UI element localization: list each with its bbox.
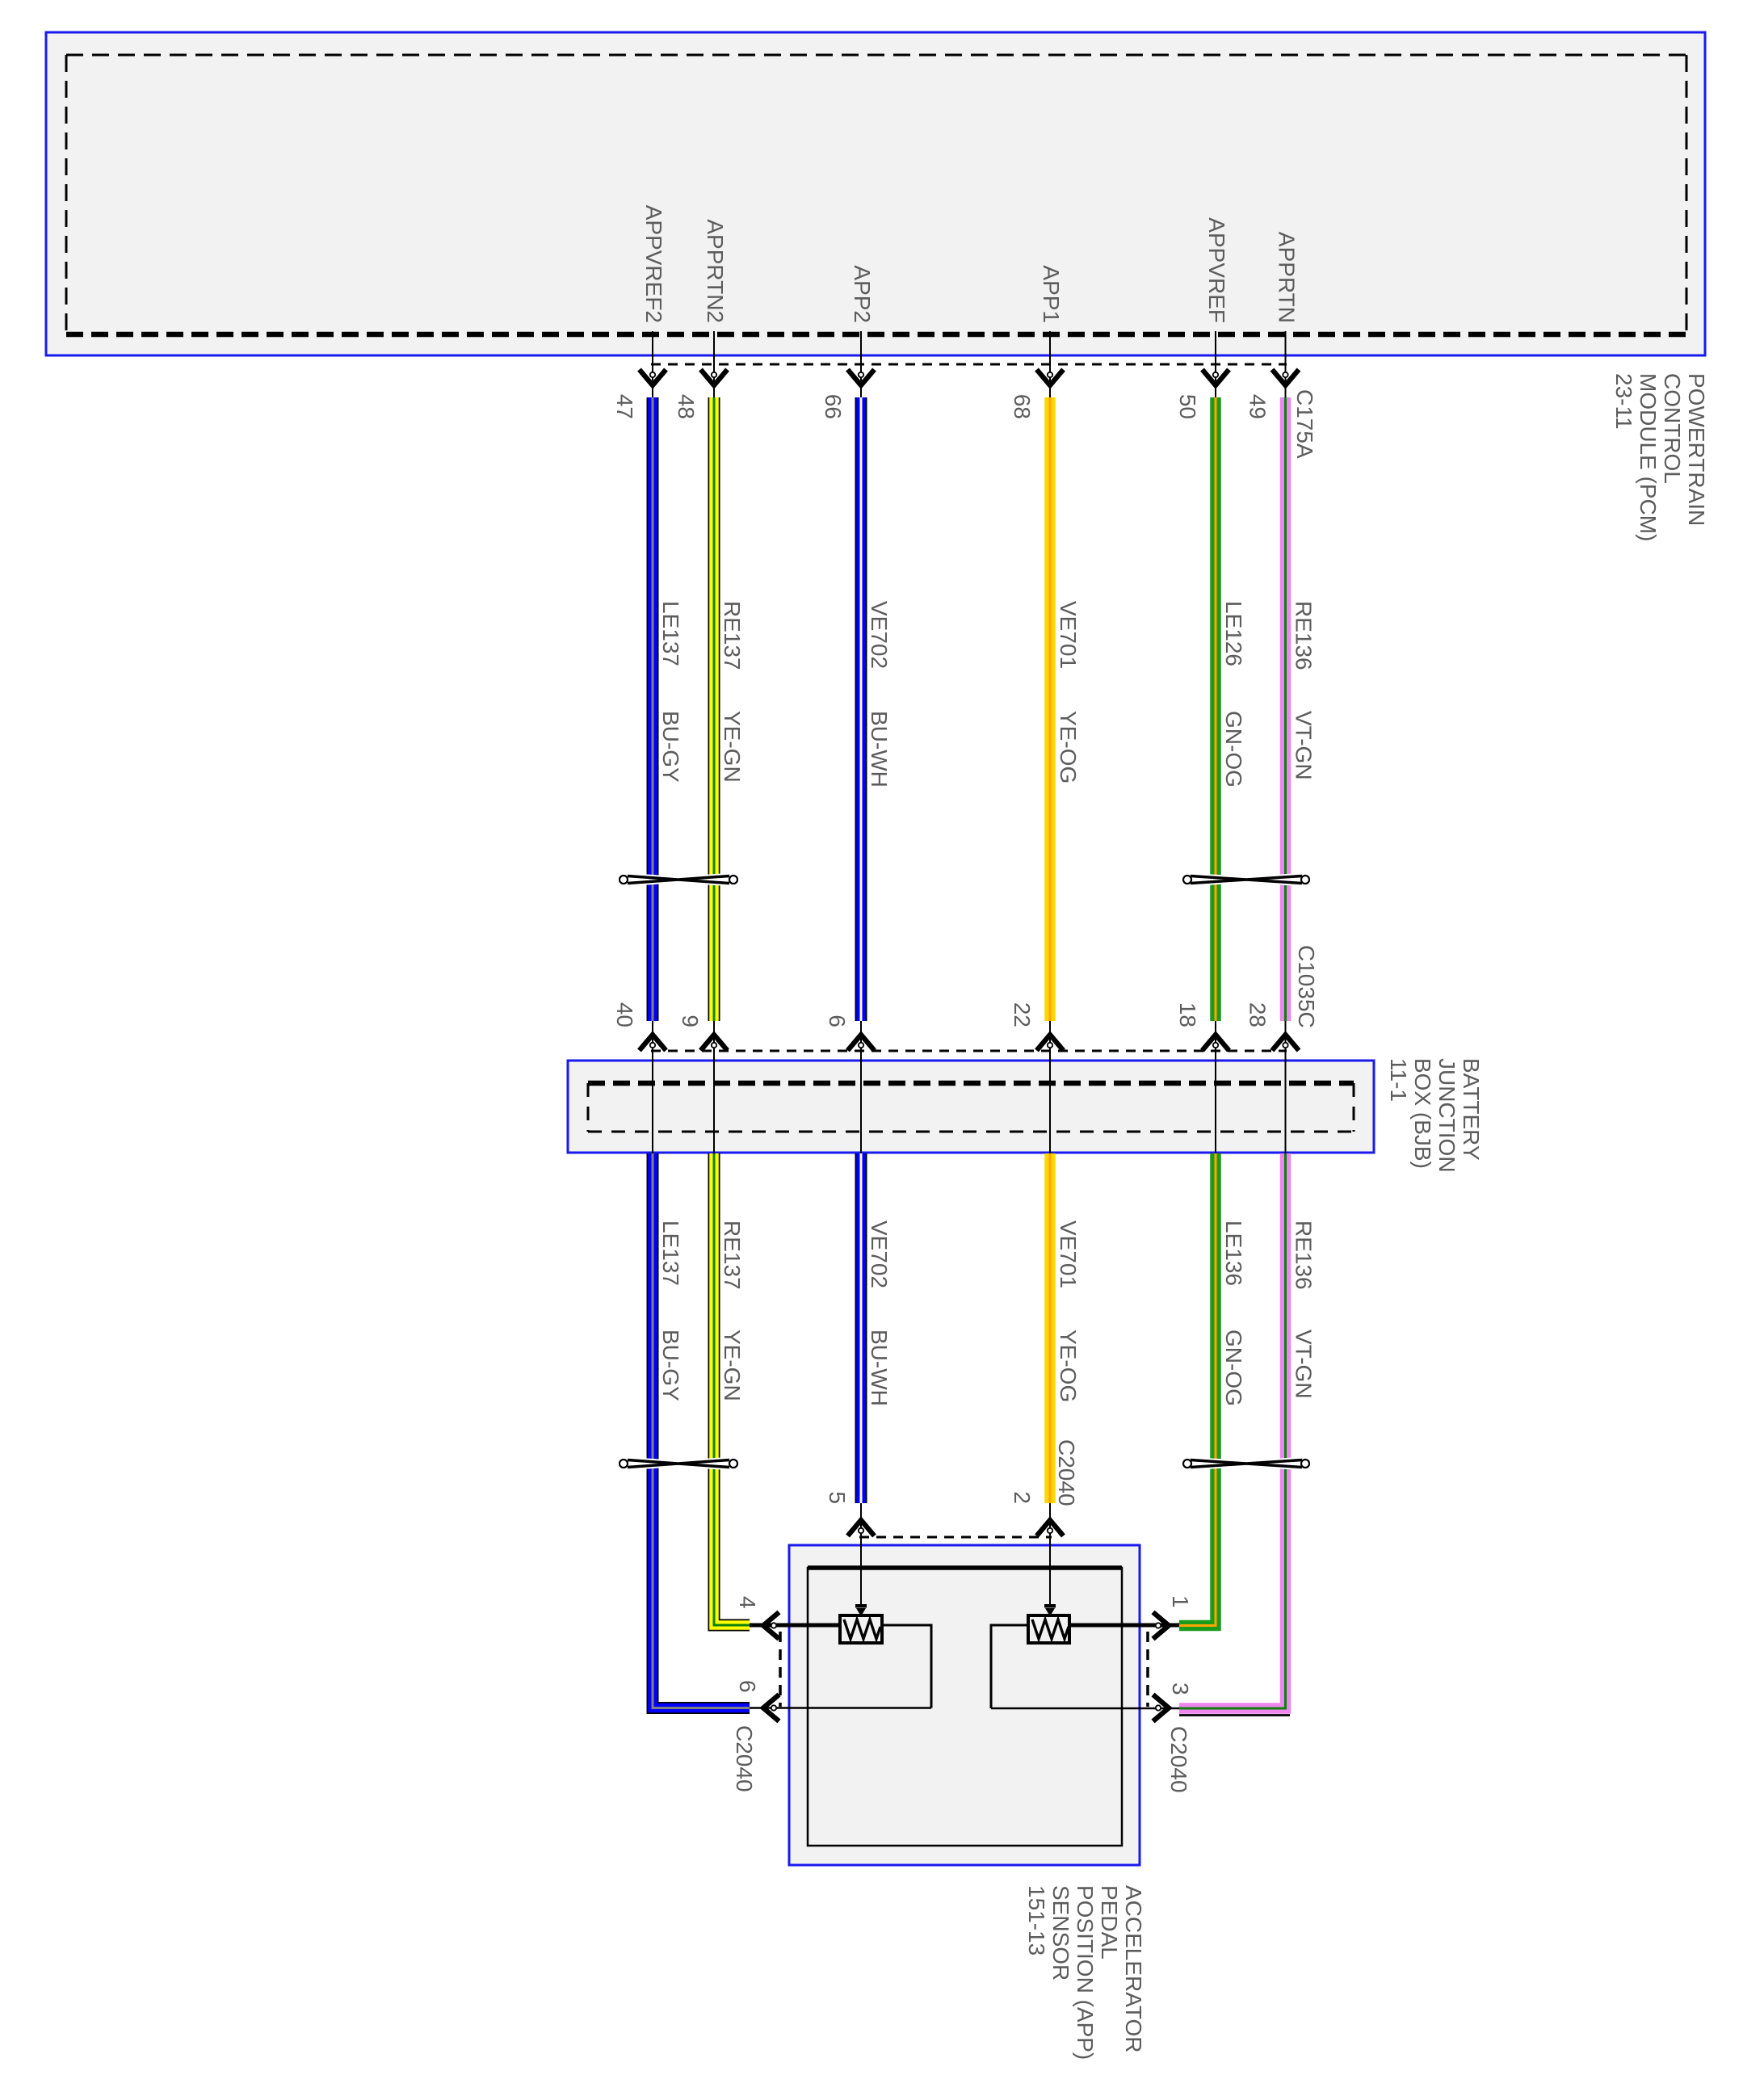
svg-text:PEDAL: PEDAL (1097, 1885, 1122, 1960)
svg-text:47: 47 (612, 394, 637, 419)
svg-text:2: 2 (1010, 1491, 1035, 1504)
svg-text:RE136: RE136 (1291, 601, 1317, 670)
svg-text:VT-GN: VT-GN (1291, 711, 1317, 780)
svg-text:LE137: LE137 (658, 601, 683, 666)
svg-text:LE126: LE126 (1221, 601, 1246, 666)
svg-text:APP1: APP1 (1039, 265, 1064, 323)
svg-text:VE701: VE701 (1056, 601, 1081, 669)
svg-text:151-13: 151-13 (1024, 1885, 1049, 1955)
svg-text:SENSOR: SENSOR (1048, 1885, 1073, 1981)
svg-text:11-1: 11-1 (1386, 1058, 1411, 1102)
svg-text:APPVREF2: APPVREF2 (641, 205, 666, 323)
svg-text:3: 3 (1168, 1682, 1193, 1695)
svg-text:GN-OG: GN-OG (1221, 711, 1246, 788)
svg-text:APPVREF: APPVREF (1204, 217, 1229, 323)
svg-text:BU-WH: BU-WH (867, 711, 892, 788)
svg-text:VE702: VE702 (867, 601, 892, 669)
svg-text:C1035C: C1035C (1294, 945, 1319, 1028)
svg-text:6: 6 (735, 1680, 760, 1693)
svg-text:18: 18 (1175, 1002, 1200, 1027)
svg-text:YE-GN: YE-GN (720, 1330, 745, 1401)
svg-text:23-11: 23-11 (1611, 373, 1636, 430)
svg-text:LE136: LE136 (1221, 1220, 1246, 1286)
svg-text:YE-GN: YE-GN (720, 711, 745, 783)
svg-text:JUNCTION: JUNCTION (1434, 1058, 1459, 1173)
svg-text:YE-OG: YE-OG (1056, 1330, 1081, 1402)
svg-text:9: 9 (678, 1014, 703, 1027)
svg-text:APPRTN2: APPRTN2 (703, 219, 728, 323)
svg-text:YE-OG: YE-OG (1056, 711, 1081, 783)
svg-text:BU-WH: BU-WH (867, 1330, 892, 1406)
svg-text:VT-GN: VT-GN (1291, 1330, 1317, 1399)
svg-text:C2040: C2040 (1054, 1439, 1079, 1506)
svg-text:28: 28 (1245, 1002, 1270, 1027)
svg-text:ACCELERATOR: ACCELERATOR (1121, 1885, 1146, 2052)
svg-text:RE137: RE137 (720, 1220, 745, 1290)
svg-text:5: 5 (825, 1491, 850, 1504)
svg-text:48: 48 (674, 394, 699, 419)
svg-text:49: 49 (1245, 394, 1270, 419)
svg-text:BATTERY: BATTERY (1459, 1058, 1484, 1161)
svg-text:VE702: VE702 (867, 1220, 892, 1288)
svg-text:50: 50 (1175, 394, 1200, 419)
svg-text:BU-GY: BU-GY (658, 1330, 683, 1401)
svg-text:POSITION (APP): POSITION (APP) (1073, 1885, 1098, 2060)
svg-text:4: 4 (735, 1596, 760, 1609)
svg-text:22: 22 (1010, 1002, 1035, 1027)
svg-text:MODULE (PCM): MODULE (PCM) (1636, 373, 1661, 541)
svg-text:POWERTRAIN: POWERTRAIN (1684, 373, 1709, 526)
svg-text:RE137: RE137 (720, 601, 745, 670)
svg-text:APPRTN: APPRTN (1275, 232, 1300, 323)
svg-text:C2040: C2040 (1166, 1726, 1191, 1793)
svg-text:1: 1 (1168, 1595, 1193, 1608)
svg-text:GN-OG: GN-OG (1221, 1330, 1246, 1406)
svg-text:68: 68 (1010, 394, 1035, 419)
svg-text:40: 40 (612, 1002, 637, 1027)
svg-text:BOX (BJB): BOX (BJB) (1410, 1058, 1435, 1169)
svg-text:VE701: VE701 (1056, 1220, 1081, 1288)
svg-text:LE137: LE137 (658, 1220, 683, 1286)
svg-text:RE136: RE136 (1291, 1220, 1317, 1290)
svg-text:C2040: C2040 (732, 1725, 757, 1792)
svg-text:APP2: APP2 (850, 265, 875, 323)
svg-text:6: 6 (825, 1014, 850, 1027)
svg-text:66: 66 (821, 394, 846, 419)
svg-text:C175A: C175A (1292, 389, 1317, 459)
svg-text:CONTROL: CONTROL (1660, 373, 1685, 484)
svg-text:BU-GY: BU-GY (658, 711, 683, 783)
